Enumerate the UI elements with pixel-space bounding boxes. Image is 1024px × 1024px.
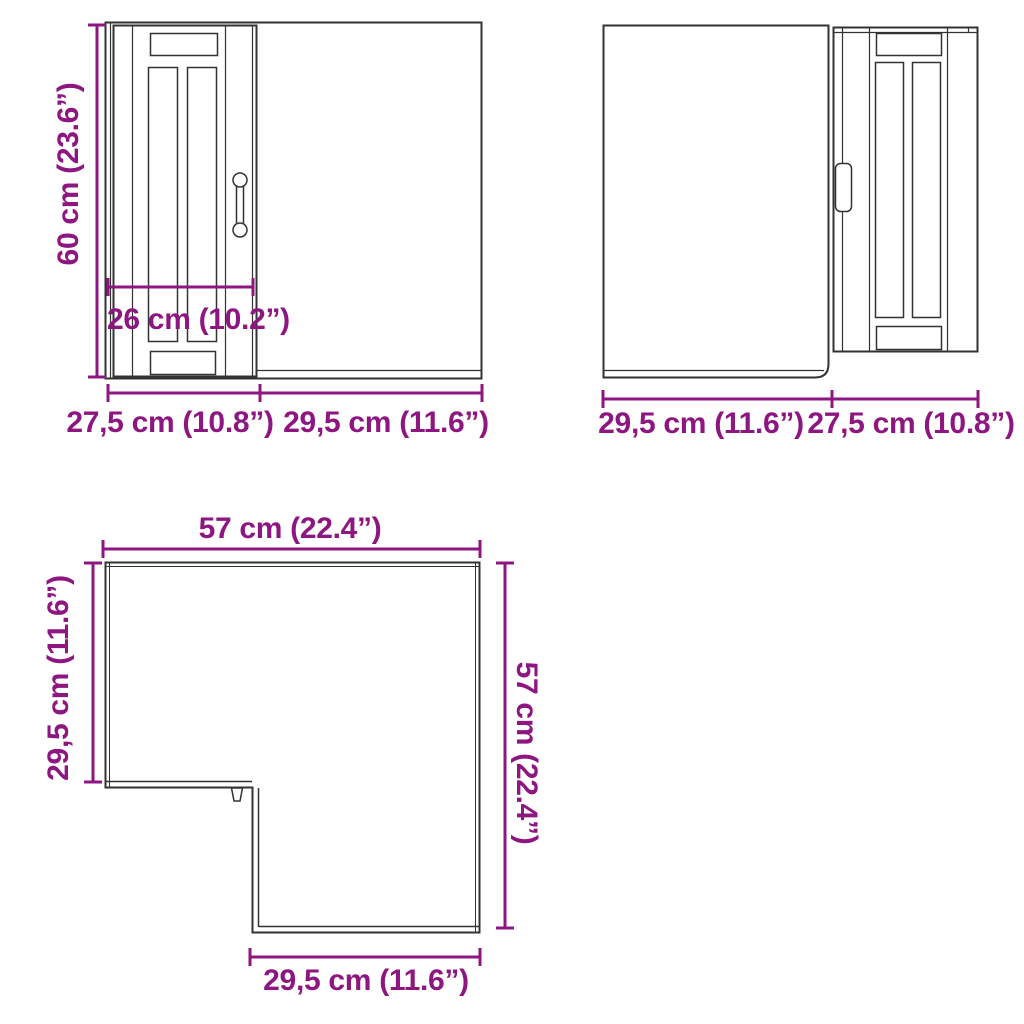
dimension-line-front-left-door-width [108, 278, 253, 296]
front-right-cabinet-drawing [604, 26, 978, 378]
dimension-line-front-right-bottom [603, 390, 978, 408]
door-glass-pane-right [188, 68, 217, 342]
door-glass-pane-left [876, 63, 904, 318]
dimension-diagram: 60 cm (23.6”) 26 cm (10.2”) 27,5 cm (10.… [0, 0, 1024, 1024]
door-glass-pane-left [149, 68, 178, 342]
door-top-rail-panel [877, 34, 942, 56]
technical-drawing-canvas [0, 0, 1024, 1024]
front-left-cabinet-drawing [106, 23, 482, 379]
side-panel-outline [604, 26, 829, 378]
door-frame [834, 28, 978, 352]
door-handle-icon [836, 164, 852, 212]
dimension-line-plan-left [84, 563, 102, 782]
door-bottom-rail-panel [151, 352, 216, 375]
door-bottom-rail-panel [877, 327, 942, 350]
dimension-line-front-left-bottom [108, 384, 482, 402]
plan-view-drawing [106, 563, 480, 933]
dimension-line-plan-right [496, 563, 514, 928]
corner-cabinet-l-outline [106, 563, 480, 933]
cabinet-body-outline [106, 23, 482, 379]
plan-handle-icon [232, 788, 243, 801]
door-frame [114, 26, 257, 377]
door-handle-icon [233, 173, 247, 237]
door-top-rail-panel [151, 34, 218, 56]
door-glass-pane-right [913, 63, 941, 318]
dimension-line-plan-bottom [250, 948, 480, 966]
dimension-line-plan-top [103, 540, 480, 558]
dimension-line-front-left-height [88, 25, 106, 377]
